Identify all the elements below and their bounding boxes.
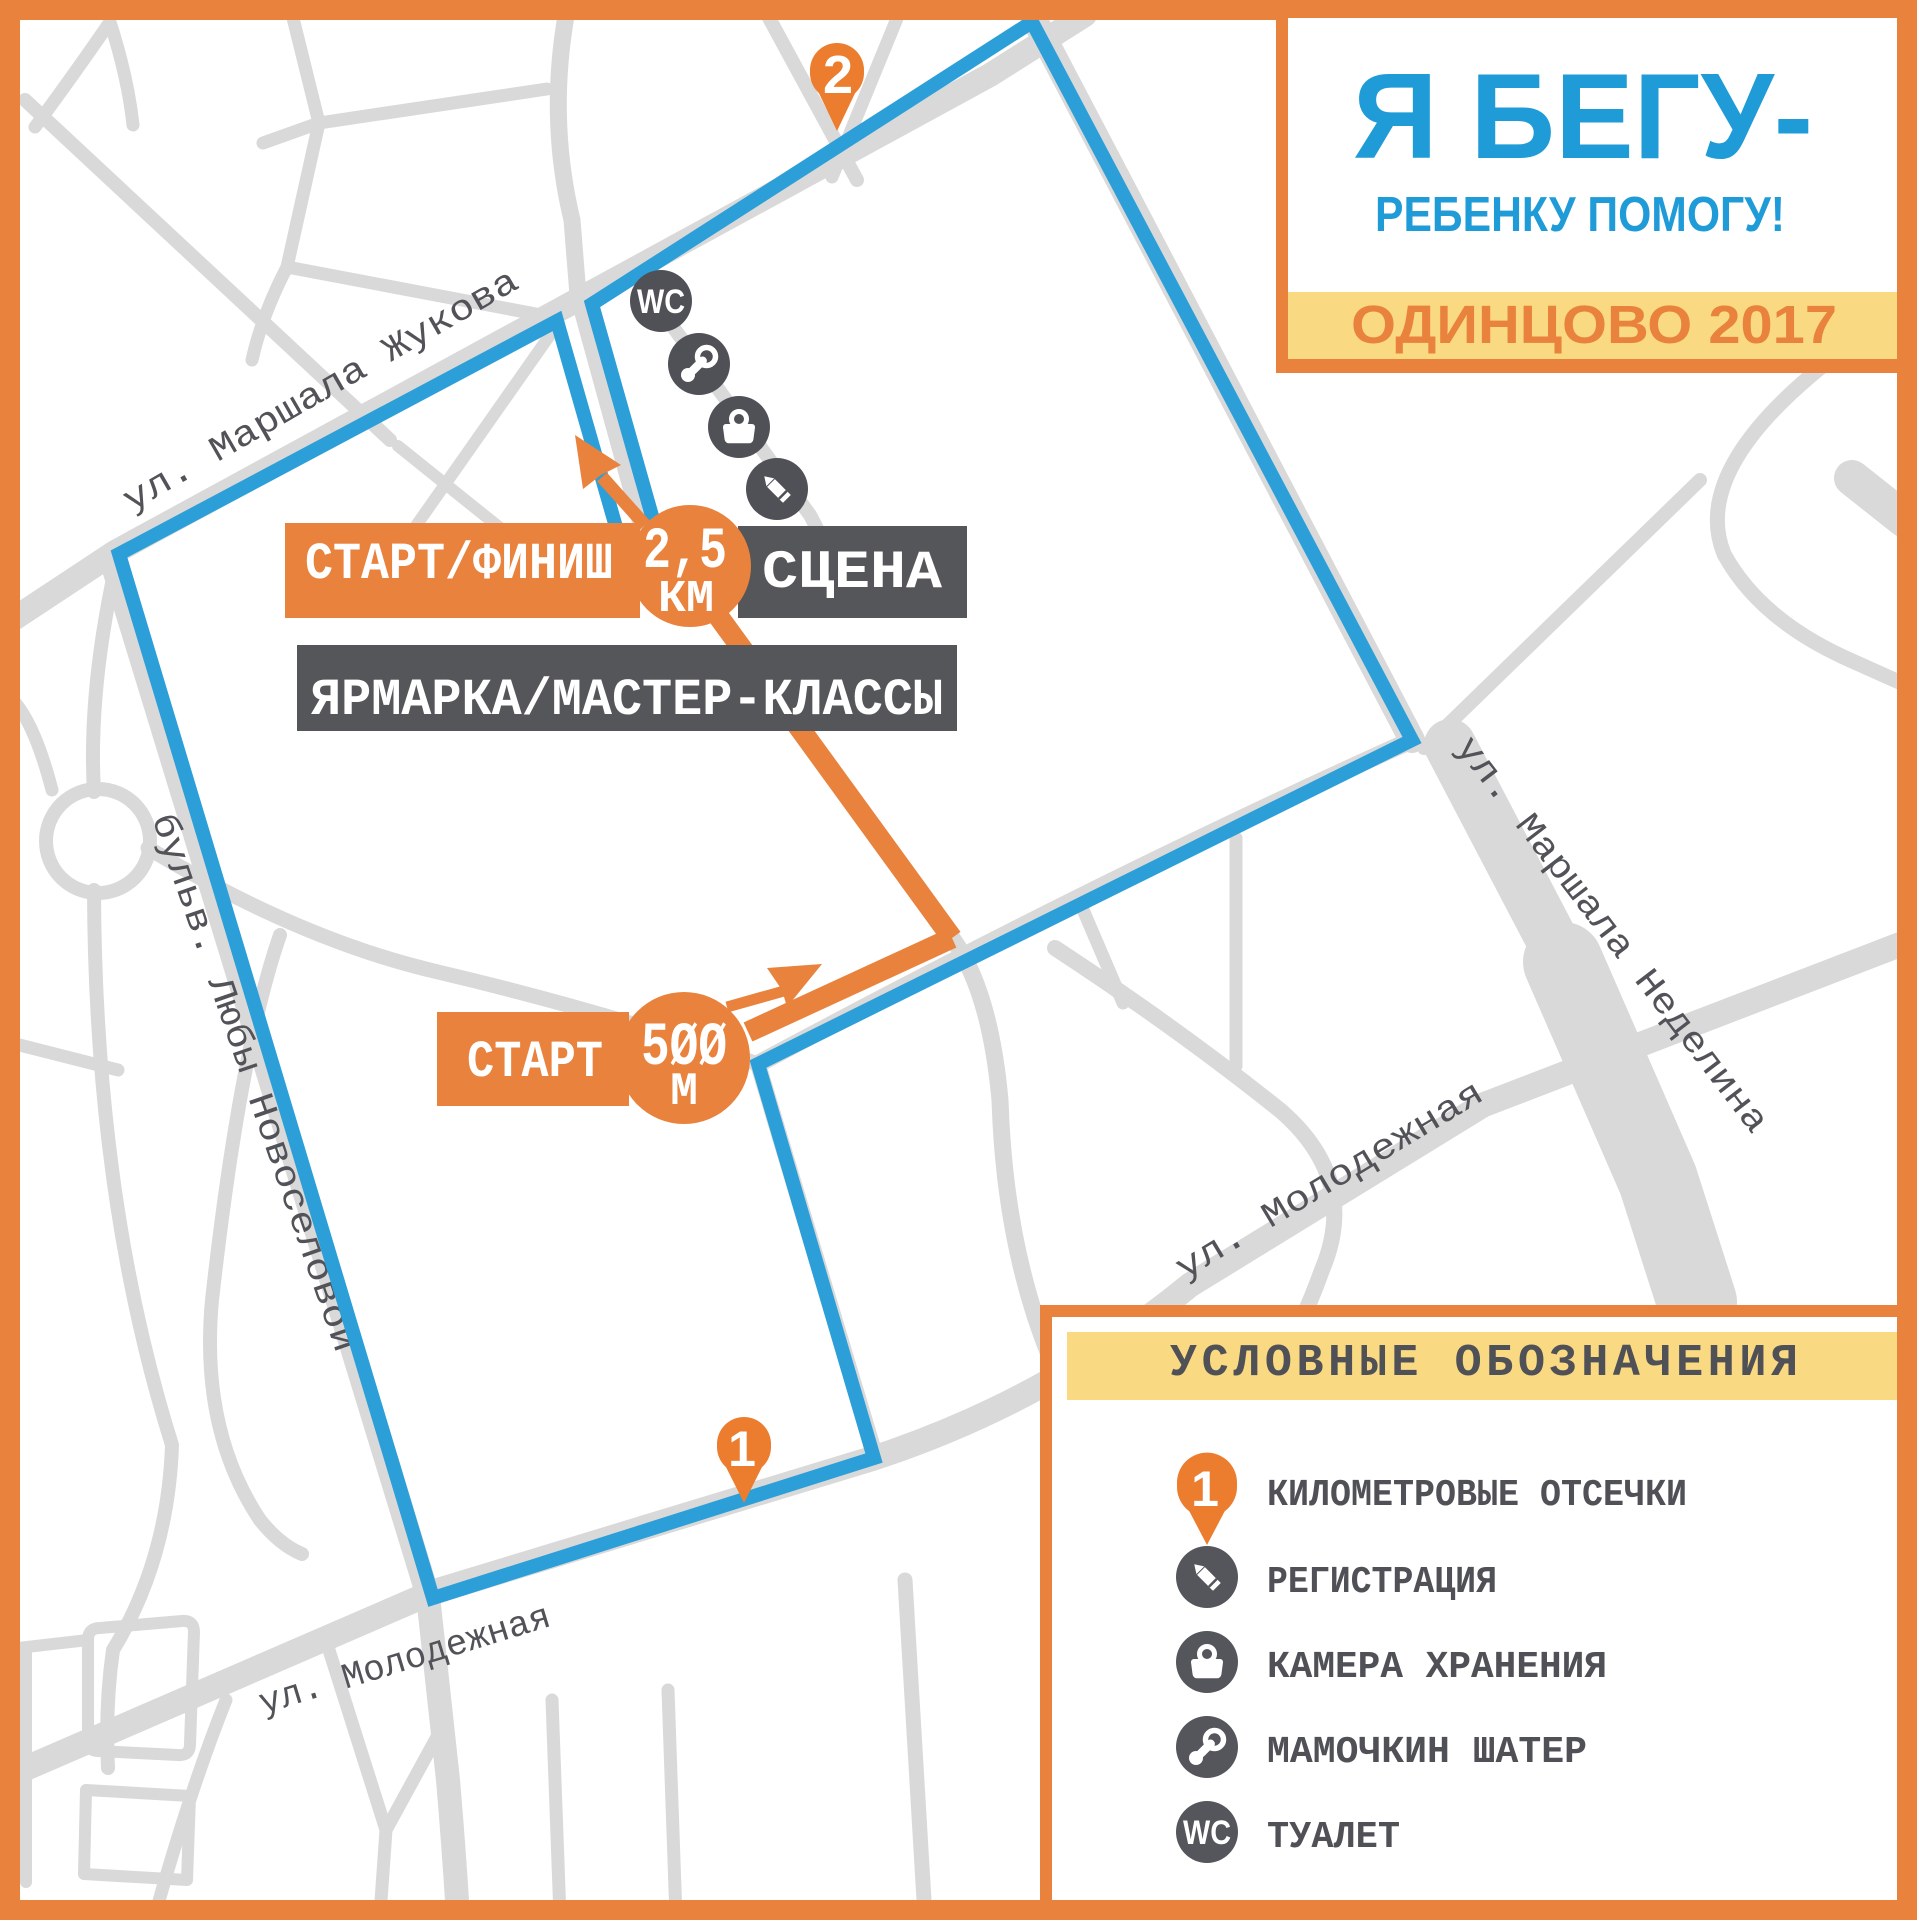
svg-text:Я БЕГУ-: Я БЕГУ- — [1353, 48, 1813, 184]
svg-text:ТУАЛЕТ: ТУАЛЕТ — [1267, 1816, 1400, 1859]
svg-text:1: 1 — [1191, 1461, 1219, 1517]
svg-text:РЕГИСТРАЦИЯ: РЕГИСТРАЦИЯ — [1267, 1561, 1497, 1604]
svg-text:ЯРМАРКА/МАСТЕР-КЛАССЫ: ЯРМАРКА/МАСТЕР-КЛАССЫ — [311, 671, 943, 730]
svg-text:ОДИНЦОВО 2017: ОДИНЦОВО 2017 — [1351, 295, 1837, 355]
svg-text:КАМЕРА ХРАНЕНИЯ: КАМЕРА ХРАНЕНИЯ — [1267, 1646, 1607, 1689]
svg-text:СТАРТ: СТАРТ — [467, 1033, 603, 1092]
svg-text:МАМОЧКИН ШАТЕР: МАМОЧКИН ШАТЕР — [1267, 1731, 1587, 1774]
svg-text:КМ: КМ — [658, 574, 714, 625]
svg-text:М: М — [670, 1066, 698, 1118]
svg-text:WC: WC — [637, 283, 685, 321]
svg-text:1: 1 — [728, 1421, 756, 1477]
svg-text:СТАРТ/ФИНИШ: СТАРТ/ФИНИШ — [305, 535, 613, 594]
svg-text:СЦЕНА: СЦЕНА — [762, 543, 943, 604]
svg-text:WC: WC — [1183, 1814, 1231, 1852]
svg-text:КИЛОМЕТРОВЫЕ ОТСЕЧКИ: КИЛОМЕТРОВЫЕ ОТСЕЧКИ — [1267, 1474, 1687, 1517]
svg-text:РЕБЕНКУ ПОМОГУ!: РЕБЕНКУ ПОМОГУ! — [1375, 188, 1785, 242]
svg-text:2: 2 — [823, 45, 853, 105]
